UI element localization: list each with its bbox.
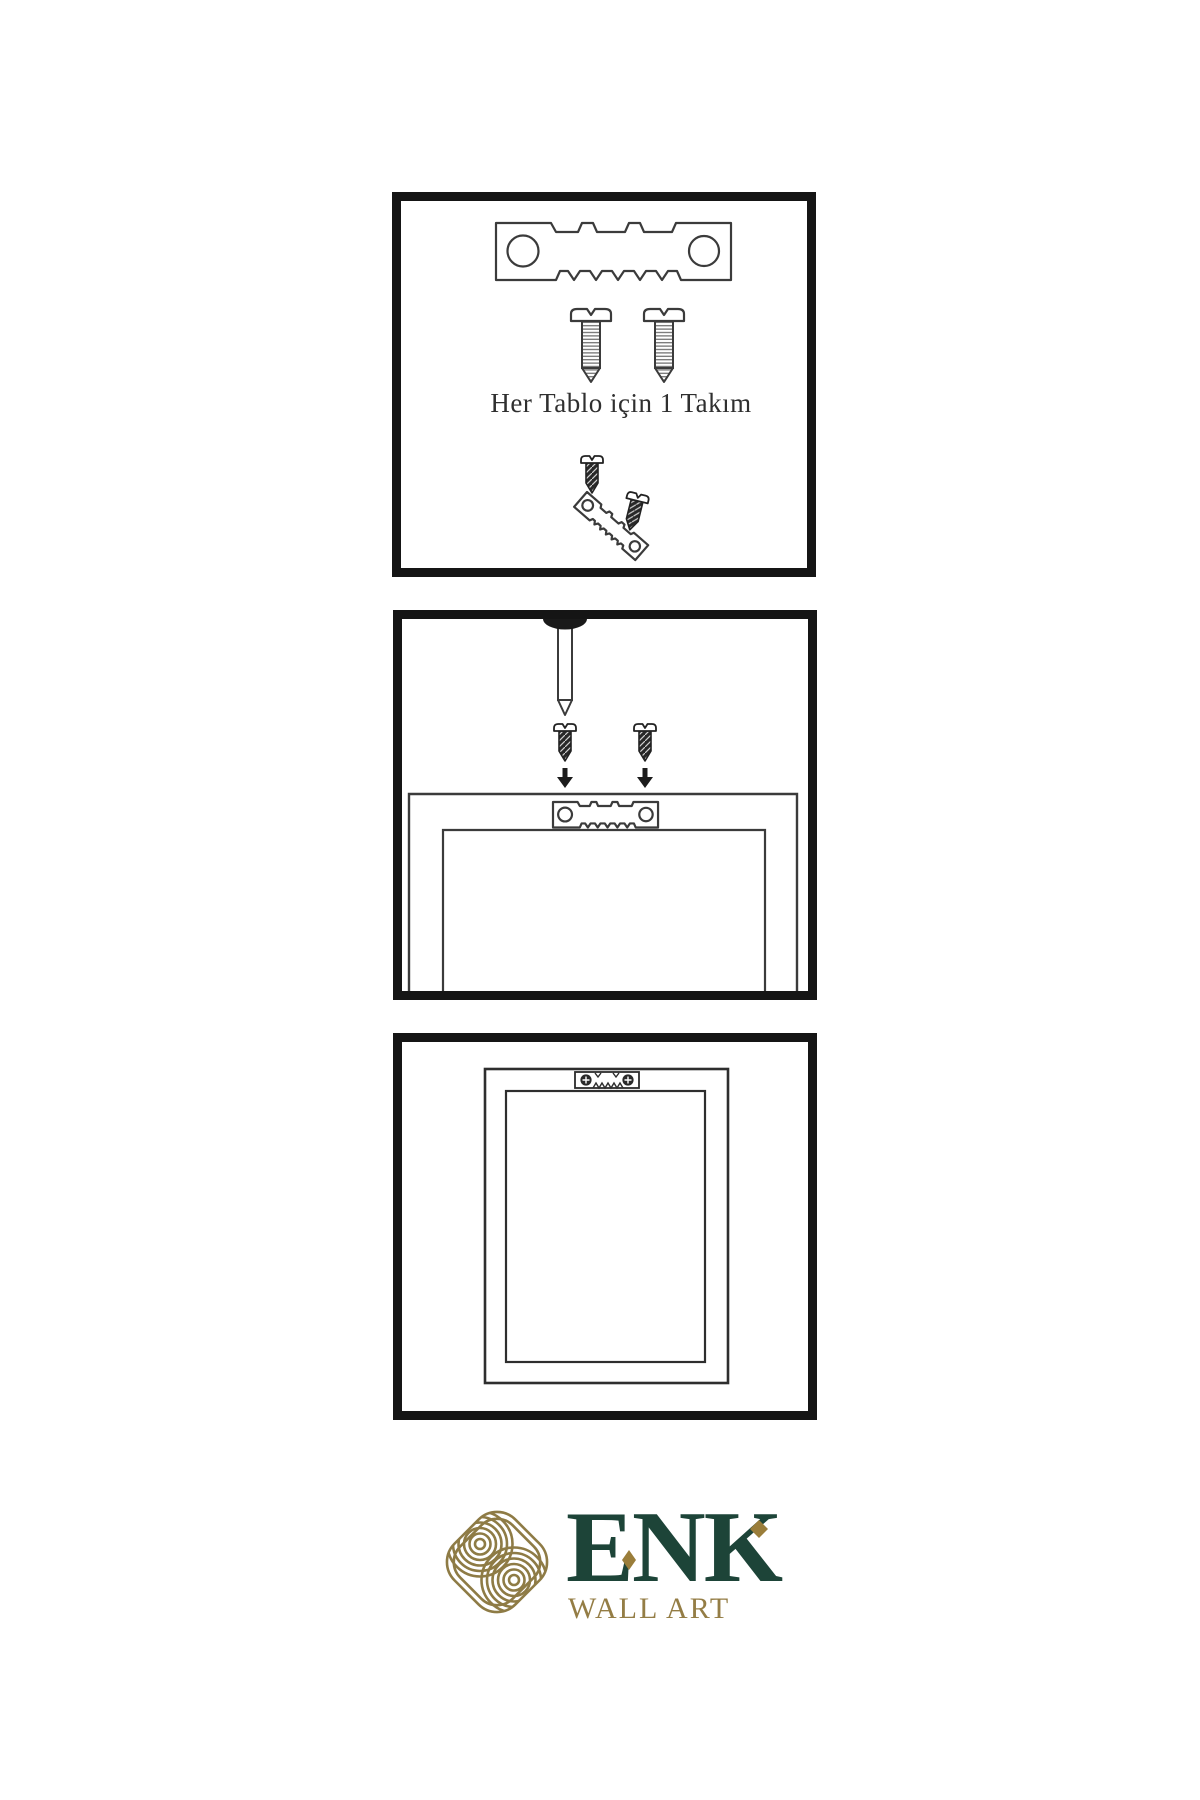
screw-icon	[644, 309, 684, 382]
mounted-hanger-icon	[575, 1072, 639, 1088]
screw-dark-icon	[554, 724, 576, 761]
screw-icon	[571, 309, 611, 382]
kit-caption: Her Tablo için 1 Takım	[418, 388, 824, 422]
arrow-down-icon	[637, 768, 653, 788]
panel-installation	[393, 610, 817, 1000]
screw-dark-icon	[581, 456, 603, 493]
screw-dark-icon	[634, 724, 656, 761]
sawtooth-hanger-icon	[553, 802, 658, 827]
sawtooth-hanger-icon	[496, 223, 731, 280]
frame-inner-edge	[506, 1091, 705, 1362]
instruction-sheet: Her Tablo için 1 Takım	[0, 0, 1200, 1800]
hardware-kit-illustration	[401, 201, 807, 568]
brand-name: ENK	[566, 1497, 781, 1599]
hung-frame-illustration	[402, 1042, 808, 1411]
panel-hardware-kit	[392, 192, 816, 577]
brand-tagline: WALL ART	[568, 1592, 730, 1625]
arrow-down-icon	[557, 768, 573, 788]
brand-knot-icon	[435, 1498, 559, 1626]
installation-illustration	[402, 619, 808, 991]
frame-back-inner-edge	[443, 830, 765, 991]
nail-icon	[543, 619, 587, 715]
panel-hung-frame	[393, 1033, 817, 1420]
